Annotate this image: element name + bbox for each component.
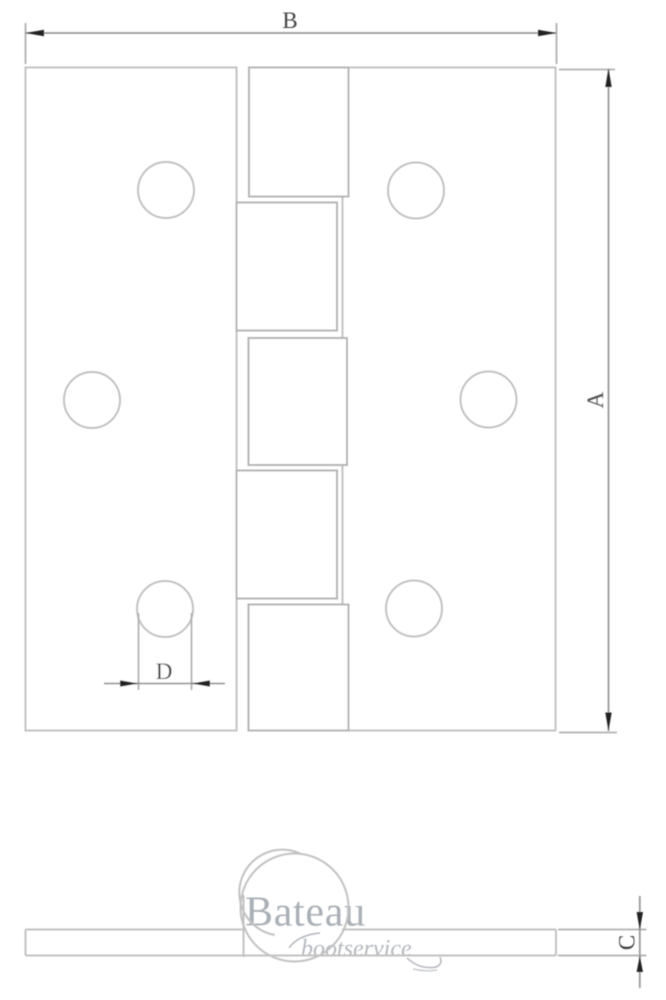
svg-text:B: B <box>282 8 297 33</box>
svg-text:A: A <box>583 391 608 408</box>
svg-text:D: D <box>156 659 173 684</box>
svg-text:C: C <box>615 935 640 950</box>
svg-text:bootservice: bootservice <box>301 936 412 962</box>
